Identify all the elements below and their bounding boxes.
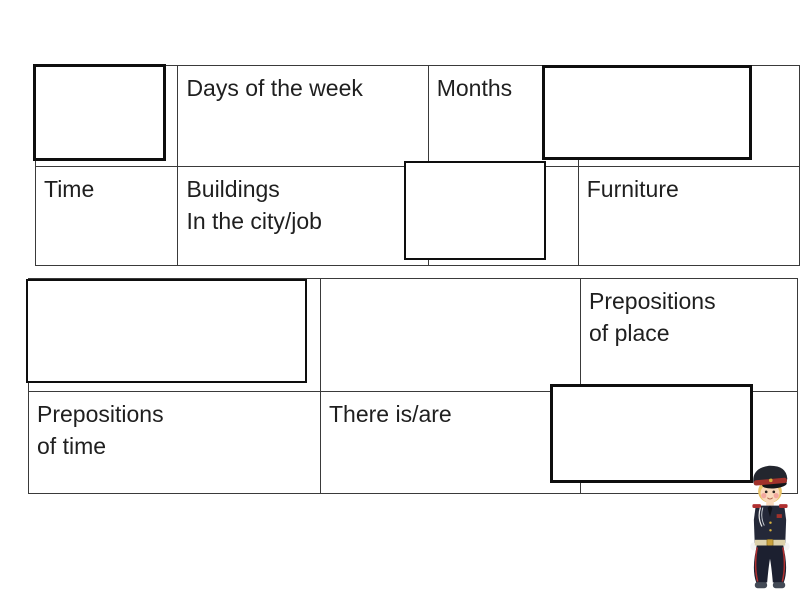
cover-shape-table1-top-right xyxy=(542,65,752,160)
t2-cell-prepositions-of-place: Prepositions of place xyxy=(581,279,798,392)
t1-cell-buildings: Buildings In the city/job xyxy=(178,167,428,266)
slide-canvas: Days of the week Months Time Buildings I… xyxy=(0,0,800,600)
cover-shape-table1-bottom-middle xyxy=(404,161,546,260)
t1-cell-time: Time xyxy=(36,167,178,266)
t2-blank-cell-middle xyxy=(321,279,581,392)
cover-shape-table2-top-left xyxy=(26,279,307,383)
mascot-cap xyxy=(752,464,788,490)
t1-cell-furniture: Furniture xyxy=(578,167,799,266)
t2-cell-prepositions-of-time: Prepositions of time xyxy=(29,392,321,494)
cover-shape-table1-top-left xyxy=(33,64,166,161)
cover-shape-table2-bottom-right xyxy=(550,384,753,483)
t1-cell-days-of-week: Days of the week xyxy=(178,66,428,167)
mascot-trousers xyxy=(754,546,786,583)
cadet-boy-mascot-image xyxy=(740,460,800,593)
t2-cell-there-is-are: There is/are xyxy=(321,392,581,494)
